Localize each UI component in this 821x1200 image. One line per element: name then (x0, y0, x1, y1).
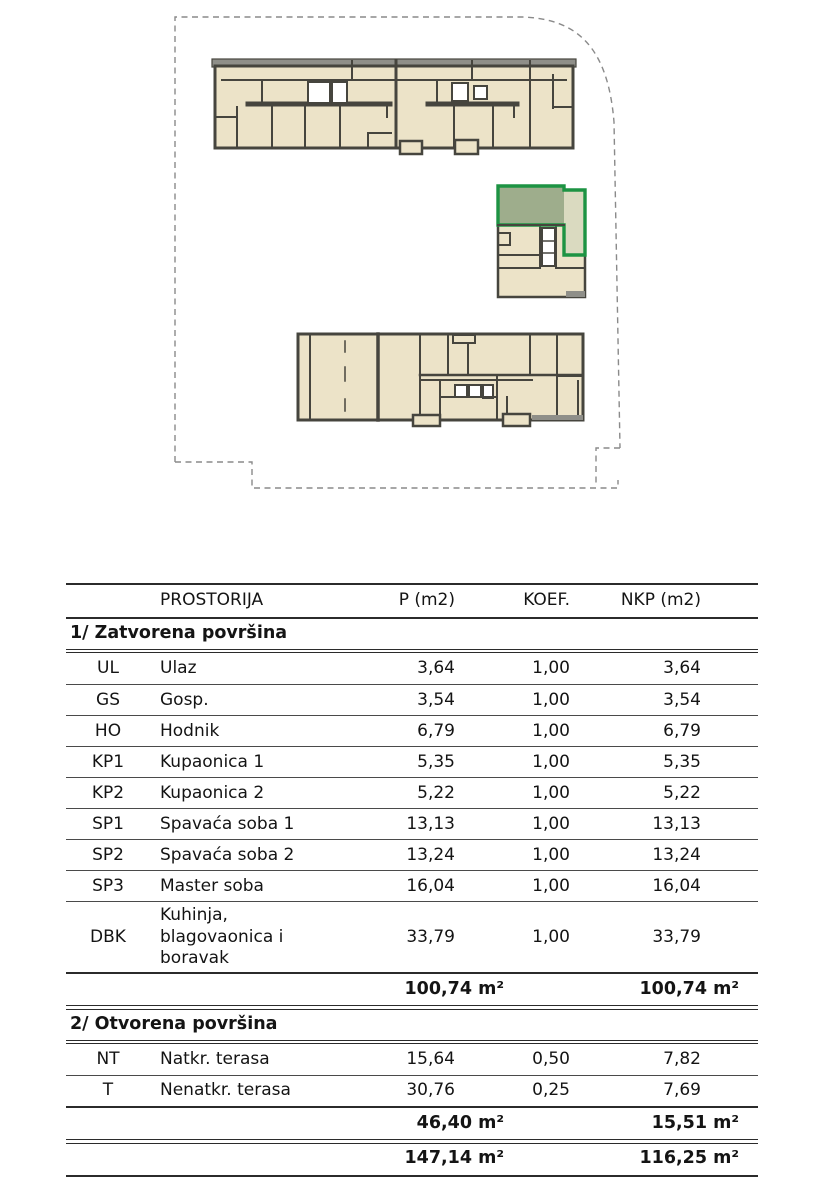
cell-koef: 1,00 (481, 749, 593, 776)
cell-code: SP2 (66, 842, 150, 869)
section-title-2: 2/ Otvorena površina (66, 1010, 758, 1040)
cell-code: T (66, 1077, 150, 1104)
cell-nkp: 7,69 (593, 1077, 758, 1104)
cell-nkp: 5,22 (593, 780, 758, 807)
cell-code: UL (66, 655, 150, 682)
cell-nkp: 16,04 (593, 873, 758, 900)
cell-nkp: 33,79 (593, 924, 758, 951)
cell-code: KP2 (66, 780, 150, 807)
cell-code: HO (66, 718, 150, 745)
cell-code: SP1 (66, 811, 150, 838)
table-bottom-rule (66, 1175, 758, 1177)
cell-code: GS (66, 687, 150, 714)
cell-p: 13,13 (330, 811, 481, 838)
cell-p: 3,64 (330, 655, 481, 682)
cell-nkp: 5,35 (593, 749, 758, 776)
area-table: PROSTORIJA P (m2) KOEF. NKP (m2) 1/ Zatv… (66, 583, 758, 1177)
subtotal-row-2: 46,40 m²15,51 m² (66, 1108, 758, 1139)
subtotal-row-1: 100,74 m²100,74 m² (66, 974, 758, 1005)
cell-name: Spavaća soba 1 (150, 811, 330, 838)
cell-koef: 1,00 (481, 873, 593, 900)
cell-name: Natkr. terasa (150, 1046, 330, 1073)
cell-code: NT (66, 1046, 150, 1073)
cell-koef: 1,00 (481, 811, 593, 838)
table-row: ULUlaz3,641,003,64 (66, 653, 758, 684)
section-rows-2: NTNatkr. terasa15,640,507,82TNenatkr. te… (66, 1044, 758, 1106)
cell-koef: 0,25 (481, 1077, 593, 1104)
cell-koef: 1,00 (481, 687, 593, 714)
cell-name: Hodnik (150, 718, 330, 745)
table-row: KP1Kupaonica 15,351,005,35 (66, 746, 758, 777)
cell-name: Kupaonica 1 (150, 749, 330, 776)
table-row: SP2Spavaća soba 213,241,0013,24 (66, 839, 758, 870)
subtotal-nkp: 116,25 m² (593, 1148, 758, 1170)
north-building (212, 59, 576, 154)
cell-p: 30,76 (330, 1077, 481, 1104)
subtotal-nkp: 100,74 m² (593, 979, 758, 1001)
cell-name: Kupaonica 2 (150, 780, 330, 807)
cell-p: 5,35 (330, 749, 481, 776)
col-header-code (66, 598, 150, 604)
middle-building (498, 186, 585, 297)
subtotal-p: 100,74 m² (330, 979, 593, 1001)
table-header-row: PROSTORIJA P (m2) KOEF. NKP (m2) (66, 585, 758, 617)
section-title-1: 1/ Zatvorena površina (66, 619, 758, 649)
col-header-koef: KOEF. (481, 587, 593, 614)
cell-koef: 1,00 (481, 780, 593, 807)
cell-p: 33,79 (330, 924, 481, 951)
cell-name: Spavaća soba 2 (150, 842, 330, 869)
cell-p: 5,22 (330, 780, 481, 807)
cell-p: 13,24 (330, 842, 481, 869)
subtotal-p: 147,14 m² (330, 1148, 593, 1170)
table-row: DBKKuhinja, blagovaonica i boravak33,791… (66, 901, 758, 972)
cell-name: Ulaz (150, 655, 330, 682)
table-row: GSGosp.3,541,003,54 (66, 684, 758, 715)
grand-total-row: 147,14 m²116,25 m² (66, 1144, 758, 1175)
section-rows-1: ULUlaz3,641,003,64GSGosp.3,541,003,54HOH… (66, 653, 758, 972)
cell-nkp: 7,82 (593, 1046, 758, 1073)
cell-code: SP3 (66, 873, 150, 900)
south-building (298, 334, 583, 426)
table-row: HOHodnik6,791,006,79 (66, 715, 758, 746)
col-header-nkp: NKP (m2) (593, 587, 758, 614)
cell-name: Master soba (150, 873, 330, 900)
table-row: SP3Master soba16,041,0016,04 (66, 870, 758, 901)
cell-p: 3,54 (330, 687, 481, 714)
floorplan-sheet: PROSTORIJA P (m2) KOEF. NKP (m2) 1/ Zatv… (0, 0, 821, 1200)
col-header-p: P (m2) (330, 587, 481, 614)
site-plan-drawing (0, 0, 821, 560)
cell-koef: 1,00 (481, 718, 593, 745)
cell-koef: 1,00 (481, 924, 593, 951)
cell-name: Kuhinja, blagovaonica i boravak (150, 902, 330, 972)
col-header-prostorija: PROSTORIJA (150, 587, 330, 614)
cell-name: Nenatkr. terasa (150, 1077, 330, 1104)
cell-nkp: 13,13 (593, 811, 758, 838)
cell-p: 16,04 (330, 873, 481, 900)
cell-nkp: 6,79 (593, 718, 758, 745)
cell-p: 6,79 (330, 718, 481, 745)
cell-name: Gosp. (150, 687, 330, 714)
cell-code: KP1 (66, 749, 150, 776)
cell-p: 15,64 (330, 1046, 481, 1073)
subtotal-p: 46,40 m² (330, 1113, 593, 1135)
cell-nkp: 13,24 (593, 842, 758, 869)
table-row: KP2Kupaonica 25,221,005,22 (66, 777, 758, 808)
cell-koef: 1,00 (481, 842, 593, 869)
table-row: NTNatkr. terasa15,640,507,82 (66, 1044, 758, 1075)
table-row: TNenatkr. terasa30,760,257,69 (66, 1075, 758, 1106)
cell-nkp: 3,54 (593, 687, 758, 714)
subtotal-nkp: 15,51 m² (593, 1113, 758, 1135)
table-body: 1/ Zatvorena površinaULUlaz3,641,003,64G… (66, 619, 758, 1177)
cell-code: DBK (66, 924, 150, 951)
site-plan (0, 0, 821, 560)
cell-koef: 1,00 (481, 655, 593, 682)
cell-koef: 0,50 (481, 1046, 593, 1073)
cell-nkp: 3,64 (593, 655, 758, 682)
table-row: SP1Spavaća soba 113,131,0013,13 (66, 808, 758, 839)
